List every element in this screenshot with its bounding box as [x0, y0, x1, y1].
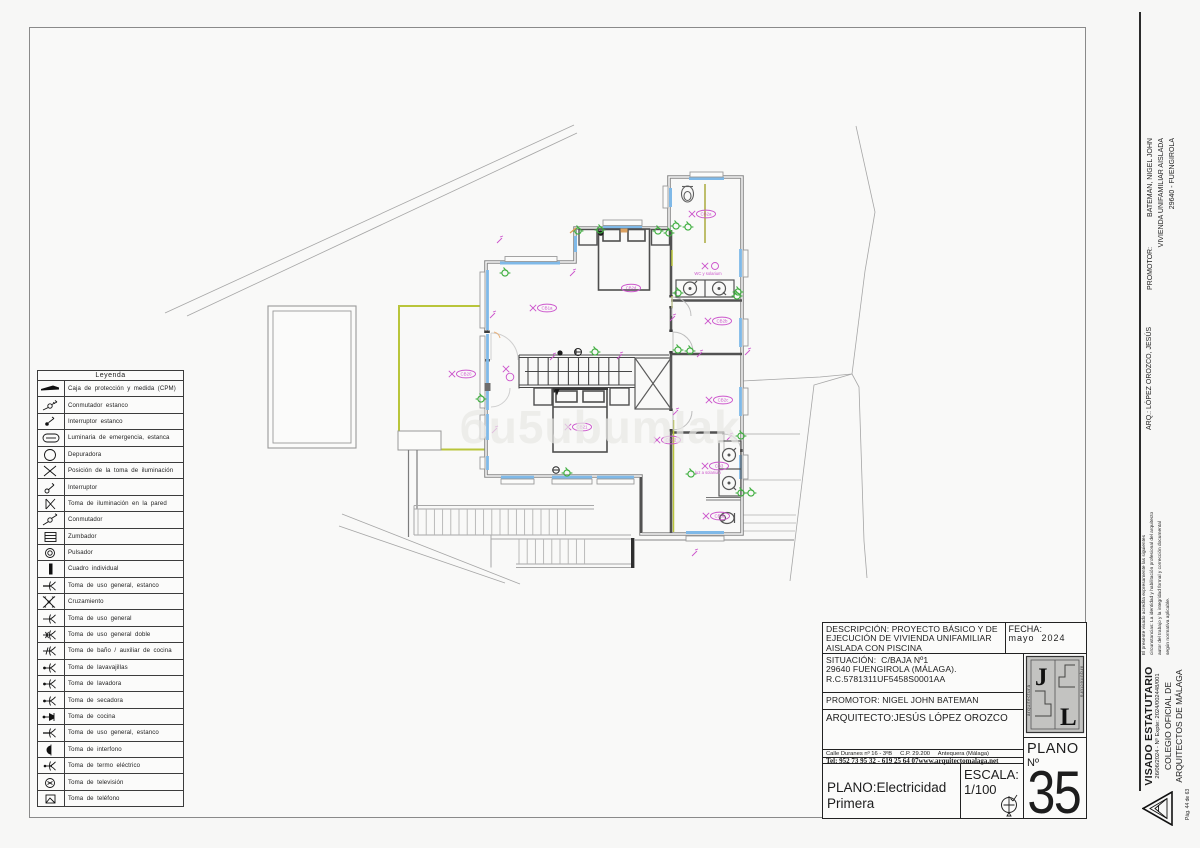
- svg-text:WC y solarium: WC y solarium: [694, 271, 722, 276]
- svg-text:бu5ubumIak: бu5ubumIak: [459, 401, 740, 453]
- svg-text:CB2d: CB2d: [626, 286, 637, 291]
- svg-text:CB1a: CB1a: [542, 306, 554, 311]
- svg-text:J: J: [1035, 664, 1048, 691]
- svg-text:CB2a: CB2a: [701, 212, 713, 217]
- svg-text:luz a solarium: luz a solarium: [695, 470, 721, 475]
- svg-text:arquitectura: arquitectura: [1026, 684, 1031, 716]
- svg-text:CB3: CB3: [715, 464, 724, 469]
- svg-text:CB3b: CB3b: [715, 514, 727, 519]
- svg-text:CB20: CB20: [461, 372, 473, 377]
- svg-text:L: L: [1060, 704, 1077, 731]
- svg-text:CB2b: CB2b: [717, 319, 729, 324]
- svg-text:arquitectura: arquitectura: [1080, 666, 1085, 698]
